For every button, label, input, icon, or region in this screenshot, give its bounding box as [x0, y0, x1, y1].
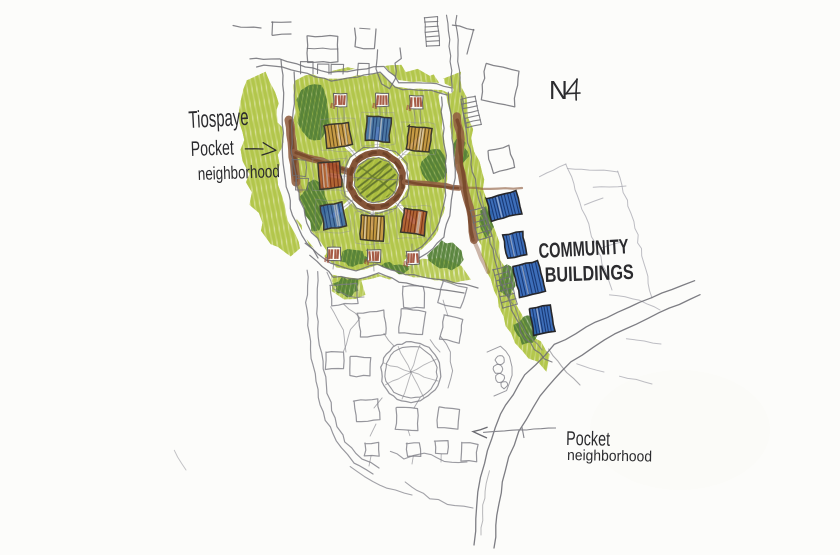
svg-text:Pocket: Pocket	[190, 137, 234, 161]
svg-text:BUILDINGS: BUILDINGS	[544, 261, 634, 287]
svg-text:neighborhood: neighborhood	[567, 447, 652, 465]
svg-text:Tiospaye: Tiospaye	[188, 104, 249, 134]
svg-text:N: N	[549, 75, 568, 105]
svg-text:COMMUNITY: COMMUNITY	[538, 235, 629, 263]
svg-text:neighborhood: neighborhood	[197, 161, 280, 184]
